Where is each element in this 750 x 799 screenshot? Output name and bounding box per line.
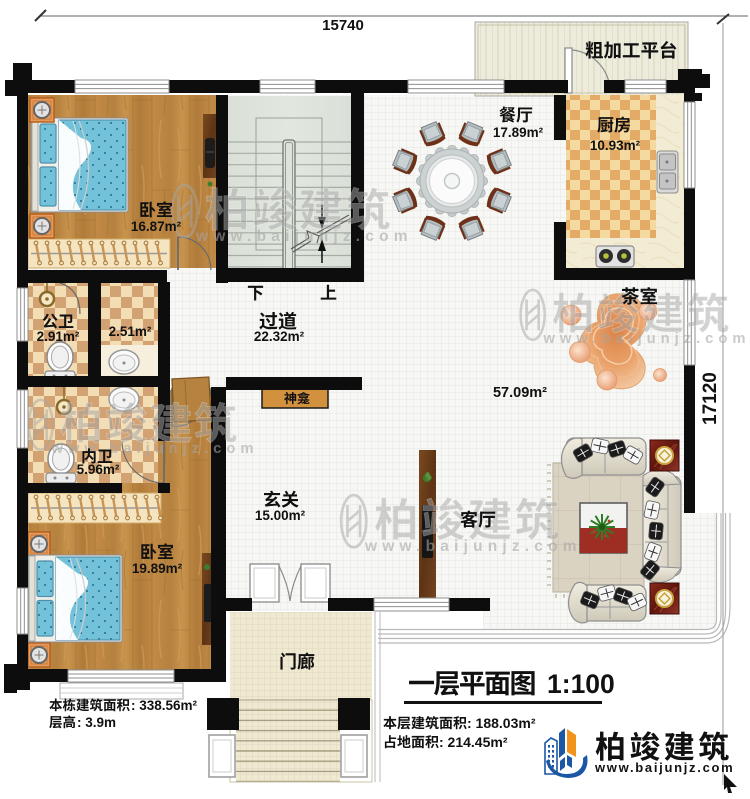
svg-text:: 3.9m: : 3.9m — [77, 715, 116, 730]
svg-text:22.32m²: 22.32m² — [254, 329, 305, 344]
svg-text:17120: 17120 — [700, 372, 721, 425]
svg-text:5.96m²: 5.96m² — [77, 462, 120, 477]
svg-text:2.51m²: 2.51m² — [109, 324, 152, 339]
svg-text:17.89m²: 17.89m² — [493, 125, 544, 140]
svg-text:10.93m²: 10.93m² — [590, 138, 641, 153]
svg-text:19.89m²: 19.89m² — [132, 561, 183, 576]
svg-text:1:100: 1:100 — [547, 669, 615, 699]
svg-text:2.91m²: 2.91m² — [37, 329, 80, 344]
svg-text:: 188.03m²: : 188.03m² — [467, 715, 536, 731]
svg-text:www.baijunjz.com: www.baijunjz.com — [542, 331, 750, 347]
svg-text:57.09m²: 57.09m² — [493, 385, 547, 401]
svg-text:15.00m²: 15.00m² — [255, 508, 306, 523]
svg-text:: 338.56m²: : 338.56m² — [131, 698, 198, 713]
svg-text:15740: 15740 — [322, 17, 364, 34]
svg-text:www.baijunjz.com: www.baijunjz.com — [594, 760, 734, 775]
svg-text:16.87m²: 16.87m² — [131, 219, 182, 234]
svg-text:www.baijunjz.com: www.baijunjz.com — [195, 228, 413, 245]
svg-text:www.baijunjz.com: www.baijunjz.com — [364, 538, 582, 555]
svg-text:: 214.45m²: : 214.45m² — [439, 734, 508, 750]
svg-text:www.baijunjz.com: www.baijunjz.com — [50, 441, 258, 457]
